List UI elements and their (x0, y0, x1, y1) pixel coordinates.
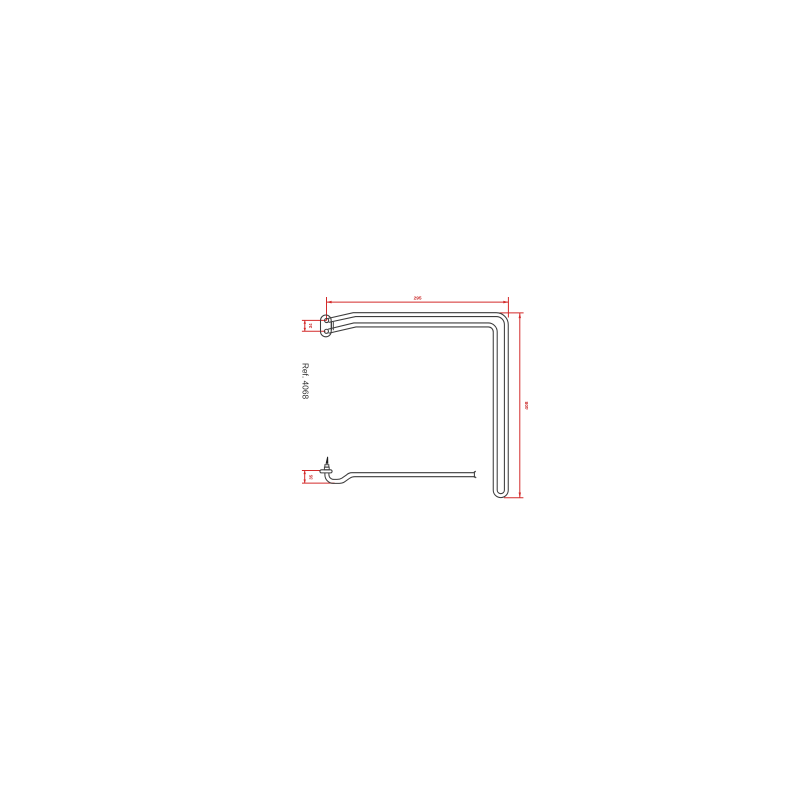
svg-text:Ref. 4068: Ref. 4068 (300, 363, 310, 400)
svg-text:408: 408 (524, 401, 530, 409)
svg-text:295: 295 (414, 296, 422, 302)
svg-text:34: 34 (308, 323, 313, 328)
svg-text:35: 35 (308, 474, 313, 479)
